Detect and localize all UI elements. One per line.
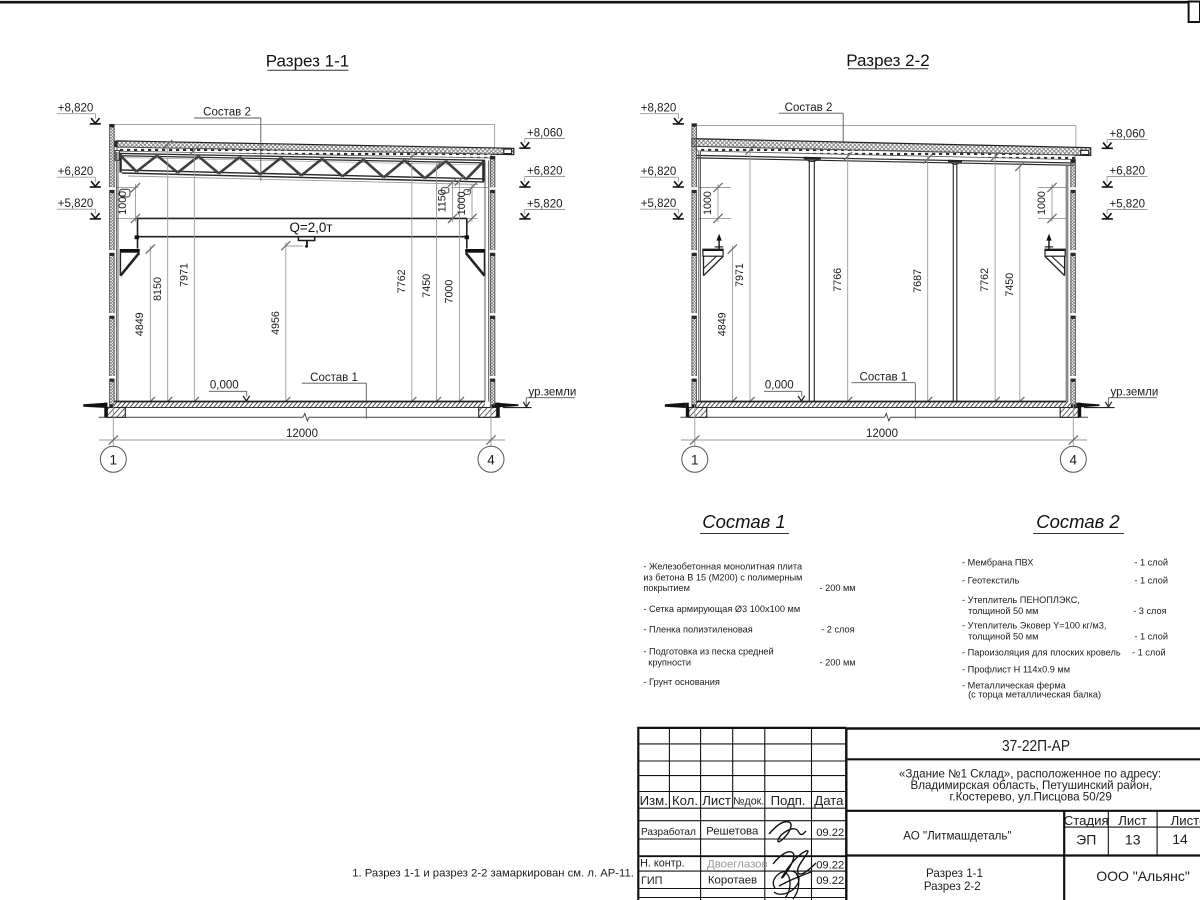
svg-text:+5,820: +5,820	[527, 198, 563, 210]
svg-text:4956: 4956	[270, 311, 282, 335]
svg-text:Состав 1: Состав 1	[310, 372, 358, 384]
svg-text:Состав 2: Состав 2	[1036, 511, 1120, 532]
svg-text:- 200 мм: - 200 мм	[820, 583, 856, 593]
svg-text:Изм.: Изм.	[640, 793, 668, 808]
svg-text:Двоеглазов: Двоеглазов	[707, 858, 768, 870]
svg-text:+5,820: +5,820	[641, 198, 677, 210]
svg-text:7000: 7000	[444, 280, 456, 304]
svg-text:- Утеплитель Эковер Y=100 кг/м: - Утеплитель Эковер Y=100 кг/м3,	[962, 621, 1106, 631]
svg-text:г.Костерево, ул.Писцова 50/29: г.Костерево, ул.Писцова 50/29	[950, 790, 1112, 803]
svg-text:толщиной 50 мм: толщиной 50 мм	[968, 632, 1038, 642]
svg-text:Лист: Лист	[702, 793, 731, 808]
svg-text:37-22П-АР: 37-22П-АР	[1002, 738, 1070, 755]
svg-text:АО "Литмашдеталь": АО "Литмашдеталь"	[903, 830, 1011, 843]
svg-text:Разработал: Разработал	[641, 826, 696, 838]
svg-text:7762: 7762	[396, 269, 408, 293]
svg-text:- Подготовка из песка средней: - Подготовка из песка средней	[643, 647, 773, 657]
svg-text:ЭП: ЭП	[1076, 832, 1096, 848]
svg-text:из бетона В 15 (М200) с полиме: из бетона В 15 (М200) с полимерным	[643, 572, 802, 582]
svg-text:(с торца металлическая балка): (с торца металлическая балка)	[968, 689, 1101, 699]
svg-text:4: 4	[1070, 452, 1078, 467]
svg-text:крупности: крупности	[648, 658, 691, 668]
svg-text:7766: 7766	[832, 268, 844, 292]
svg-text:Разрез 2-2: Разрез 2-2	[846, 51, 929, 70]
svg-text:7687: 7687	[912, 269, 924, 293]
svg-text:- 200 мм: - 200 мм	[820, 658, 856, 668]
svg-text:1. Разрез 1-1 и разрез 2-2 зам: 1. Разрез 1-1 и разрез 2-2 замаркирован …	[352, 868, 634, 880]
svg-text:- Мембрана ПВХ: - Мембрана ПВХ	[962, 558, 1033, 568]
svg-text:- Утеплитель ПЕНОПЛЭКС,: - Утеплитель ПЕНОПЛЭКС,	[962, 595, 1080, 605]
svg-text:+6,820: +6,820	[58, 166, 94, 178]
svg-text:4849: 4849	[717, 312, 729, 336]
svg-text:Подп.: Подп.	[771, 793, 806, 808]
svg-text:ур.земли: ур.земли	[1111, 386, 1159, 398]
svg-text:+8,060: +8,060	[527, 127, 563, 139]
svg-text:ООО "Альянс": ООО "Альянс"	[1096, 868, 1190, 884]
svg-text:толщиной 50 мм: толщиной 50 мм	[968, 606, 1038, 616]
svg-text:Листов: Листов	[1171, 813, 1200, 828]
svg-text:Коротаев: Коротаев	[708, 874, 757, 886]
svg-text:4: 4	[487, 452, 495, 467]
svg-text:Разрез 1-1: Разрез 1-1	[926, 867, 983, 880]
svg-text:0,000: 0,000	[765, 380, 794, 392]
svg-text:14: 14	[1172, 831, 1188, 847]
svg-text:Состав 1: Состав 1	[702, 511, 785, 532]
svg-text:Лист: Лист	[1118, 813, 1147, 828]
svg-text:1000: 1000	[456, 191, 468, 215]
svg-text:- Сетка армирующая Ø3 100х100: - Сетка армирующая Ø3 100х100 мм	[643, 604, 800, 614]
svg-text:ур.земли: ур.земли	[529, 386, 577, 398]
svg-text:13: 13	[1125, 831, 1141, 847]
svg-text:- 2 слоя: - 2 слоя	[821, 625, 854, 635]
svg-text:- Железобетонная монолитная п: - Железобетонная монолитная плита	[643, 562, 803, 572]
svg-text:- 1 слой: - 1 слой	[1134, 558, 1168, 568]
svg-text:+6,820: +6,820	[1110, 165, 1146, 177]
svg-text:+6,820: +6,820	[641, 166, 677, 178]
svg-text:Н. контр.: Н. контр.	[640, 857, 685, 869]
svg-text:09.22: 09.22	[816, 827, 844, 839]
svg-text:Стадия: Стадия	[1064, 813, 1109, 828]
svg-text:Состав 2: Состав 2	[203, 107, 251, 119]
svg-text:- 3 слоя: - 3 слоя	[1133, 606, 1166, 616]
svg-text:8150: 8150	[152, 277, 164, 301]
svg-text:- 1 слой: - 1 слой	[1132, 648, 1166, 658]
svg-text:покрытием: покрытием	[643, 583, 690, 593]
svg-text:7971: 7971	[734, 263, 746, 287]
svg-text:Разрез 2-2: Разрез 2-2	[924, 880, 981, 893]
svg-text:7450: 7450	[421, 274, 433, 298]
svg-text:1000: 1000	[702, 191, 714, 215]
svg-text:- Геотекстиль: - Геотекстиль	[962, 575, 1020, 585]
svg-text:- 1 слой: - 1 слой	[1134, 575, 1168, 585]
svg-text:7450: 7450	[1004, 273, 1016, 297]
svg-text:1: 1	[110, 452, 118, 467]
svg-text:ГИП: ГИП	[641, 875, 662, 887]
svg-text:- Пленка полиэтиленовая: - Пленка полиэтиленовая	[643, 625, 752, 635]
svg-text:+5,820: +5,820	[1110, 198, 1146, 210]
svg-text:12000: 12000	[286, 428, 318, 440]
svg-text:Q=2,0т: Q=2,0т	[290, 220, 333, 235]
svg-text:0,000: 0,000	[210, 380, 239, 392]
svg-text:12000: 12000	[866, 428, 898, 440]
svg-text:- 1 слой: - 1 слой	[1134, 632, 1168, 642]
svg-text:Состав 2: Состав 2	[785, 102, 833, 114]
svg-text:7762: 7762	[979, 268, 991, 292]
svg-text:4849: 4849	[134, 312, 146, 336]
svg-text:1150: 1150	[437, 189, 449, 212]
svg-text:+5,820: +5,820	[58, 198, 94, 210]
svg-text:Решетова: Решетова	[706, 826, 759, 838]
svg-text:Кол.: Кол.	[672, 793, 698, 808]
svg-text:+6,820: +6,820	[527, 165, 563, 177]
svg-text:Дата: Дата	[814, 793, 844, 808]
svg-text:09.22: 09.22	[816, 875, 844, 887]
svg-text:+8,820: +8,820	[641, 103, 677, 115]
svg-text:+8,060: +8,060	[1110, 128, 1146, 140]
svg-text:№док.: №док.	[733, 796, 764, 808]
svg-text:1000: 1000	[1036, 191, 1048, 215]
svg-text:1: 1	[691, 452, 699, 467]
svg-text:1000: 1000	[117, 191, 129, 215]
svg-text:- Профлист Н 114х0.9 мм: - Профлист Н 114х0.9 мм	[962, 665, 1070, 675]
svg-text:Разрез 1-1: Разрез 1-1	[266, 52, 349, 71]
svg-text:09.22: 09.22	[816, 859, 844, 871]
svg-text:Состав 1: Состав 1	[860, 371, 908, 383]
svg-text:+8,820: +8,820	[58, 103, 94, 115]
svg-text:- Грунт основания: - Грунт основания	[643, 677, 719, 687]
svg-text:7971: 7971	[178, 263, 190, 287]
svg-text:- Пароизоляция для плоских кро: - Пароизоляция для плоских кровель	[962, 648, 1121, 658]
